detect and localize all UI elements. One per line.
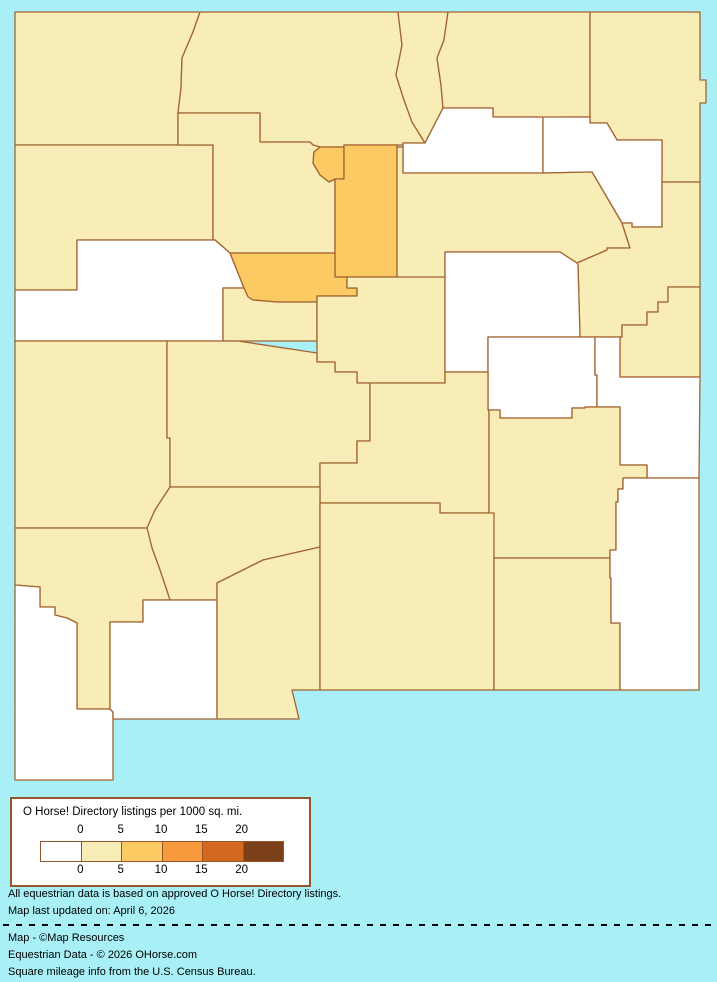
legend-tick-label: 5 xyxy=(117,864,123,876)
legend-ticks-top: 05101520 xyxy=(12,824,309,837)
legend-swatch xyxy=(41,842,82,861)
legend-tick-label: 20 xyxy=(235,864,248,876)
legend-tick-label: 15 xyxy=(195,864,208,876)
county-santa-fe[interactable] xyxy=(335,145,397,277)
legend-swatch xyxy=(122,842,163,861)
legend-swatch xyxy=(244,842,284,861)
legend-tick-label: 15 xyxy=(195,824,208,836)
legend-tick-label: 0 xyxy=(77,824,83,836)
legend-tick-label: 5 xyxy=(117,824,123,836)
legend: O Horse! Directory listings per 1000 sq.… xyxy=(10,797,311,887)
legend-tick-label: 0 xyxy=(77,864,83,876)
legend-tick-label: 20 xyxy=(235,824,248,836)
footer-credit-census: Square mileage info from the U.S. Census… xyxy=(8,966,256,978)
county-lea[interactable] xyxy=(610,478,699,690)
county-otero[interactable] xyxy=(320,503,494,690)
legend-tick-label: 10 xyxy=(155,864,168,876)
county-de-baca[interactable] xyxy=(488,337,597,418)
county-eddy[interactable] xyxy=(494,558,620,690)
legend-swatch xyxy=(203,842,244,861)
county-colfax[interactable] xyxy=(437,12,590,122)
footer-credit-data: Equestrian Data - © 2026 OHorse.com xyxy=(8,949,197,961)
new-mexico-county-map xyxy=(0,0,717,790)
county-san-juan[interactable] xyxy=(15,12,200,145)
county-catron[interactable] xyxy=(15,341,170,528)
footer-note-1: All equestrian data is based on approved… xyxy=(8,888,341,900)
legend-color-ramp xyxy=(40,841,284,862)
dashed-separator xyxy=(3,924,714,926)
legend-swatch xyxy=(82,842,123,861)
legend-tick-label: 10 xyxy=(155,824,168,836)
footer-credit-map: Map - ©Map Resources xyxy=(8,932,124,944)
footer-note-2: Map last updated on: April 6, 2026 xyxy=(8,905,175,917)
legend-swatch xyxy=(163,842,204,861)
legend-ticks-bottom: 05101520 xyxy=(12,864,309,877)
legend-title: O Horse! Directory listings per 1000 sq.… xyxy=(23,806,242,818)
page: { "app": { "background_color": "#A8F0F6"… xyxy=(0,0,717,982)
